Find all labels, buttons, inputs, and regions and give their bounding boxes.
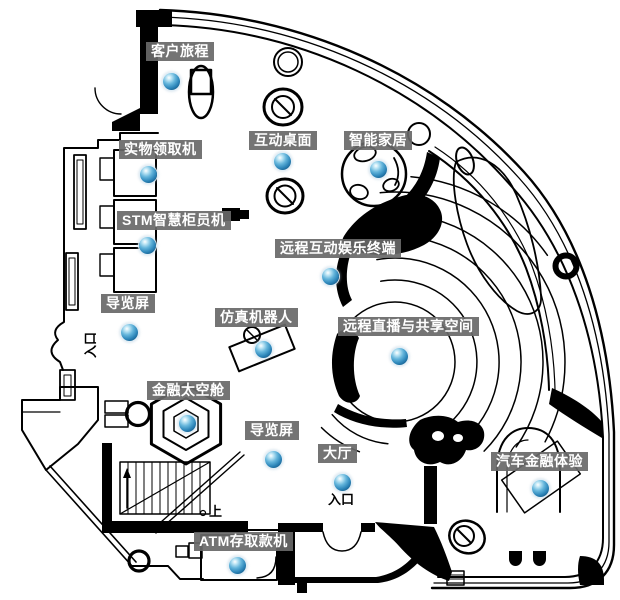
poi-label-customer-journey: 客户旅程 (146, 42, 214, 61)
poi-label-remote-interactive-entertainment-terminal: 远程互动娱乐终端 (275, 239, 401, 258)
poi-hotspot-customer-journey[interactable] (163, 73, 180, 90)
poi-hotspot-remote-live-shared-space[interactable] (391, 348, 408, 365)
outer-wall-band (160, 10, 614, 588)
poi-hotspot-physical-item-pickup-machine[interactable] (140, 166, 157, 183)
poi-label-guide-screen-north: 导览屏 (101, 294, 155, 313)
poi-label-stm-smart-teller-machine: STM智慧柜员机 (117, 211, 231, 230)
floorplan-drawing (0, 0, 620, 600)
stairs (102, 443, 278, 533)
poi-label-finance-space-capsule: 金融太空舱 (147, 381, 230, 400)
poi-label-guide-screen-south: 导览屏 (245, 421, 299, 440)
poi-label-atm-deposit-withdrawal: ATM存取款机 (194, 532, 293, 551)
poi-hotspot-remote-interactive-entertainment-terminal[interactable] (322, 268, 339, 285)
decor-feet (509, 551, 546, 566)
poi-label-remote-live-shared-space: 远程直播与共享空间 (338, 317, 479, 336)
poi-hotspot-atm-deposit-withdrawal[interactable] (229, 557, 246, 574)
entrance (278, 522, 452, 593)
kiosk (189, 66, 213, 118)
poi-hotspot-simulation-robot[interactable] (255, 341, 272, 358)
poi-hotspot-smart-home[interactable] (370, 161, 387, 178)
poi-label-auto-finance-experience: 汽车金融体验 (491, 452, 588, 471)
poi-hotspot-guide-screen-north[interactable] (121, 324, 138, 341)
poi-label-interactive-table: 互动桌面 (249, 131, 317, 150)
poi-label-physical-item-pickup-machine: 实物领取机 (119, 140, 202, 159)
poi-label-lobby: 大厅 (318, 444, 357, 463)
poi-hotspot-finance-space-capsule[interactable] (179, 415, 196, 432)
poi-hotspot-auto-finance-experience[interactable] (532, 480, 549, 497)
topleft-wall (112, 10, 172, 131)
poi-hotspot-interactive-table[interactable] (274, 153, 291, 170)
poi-label-simulation-robot: 仿真机器人 (215, 308, 298, 327)
poi-hotspot-lobby[interactable] (334, 474, 351, 491)
interactive-tables (264, 89, 303, 213)
poi-hotspot-guide-screen-south[interactable] (265, 451, 282, 468)
poi-label-smart-home: 智能家居 (344, 131, 412, 150)
poi-hotspot-stm-smart-teller-machine[interactable] (139, 237, 156, 254)
floorplan-map: 客户旅程 实物领取机 STM智慧柜员机 导览屏 互动桌面 智能家居 远程互动娱乐… (0, 0, 620, 600)
